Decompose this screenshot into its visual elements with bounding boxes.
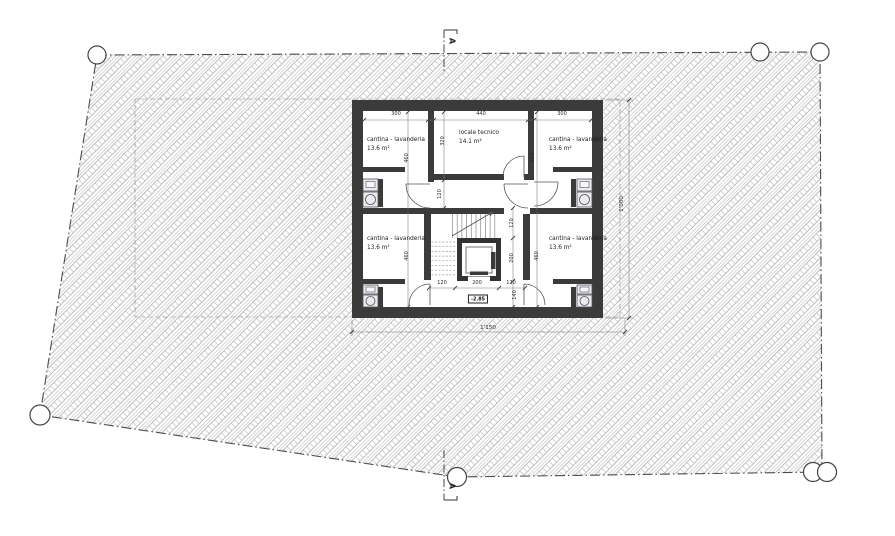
section-label-bottom: A bbox=[448, 483, 457, 489]
dim-top-left: 300 bbox=[391, 111, 401, 117]
section-label-top: A bbox=[448, 38, 457, 44]
washer-top-left bbox=[363, 179, 378, 207]
dim-lobby-right: 120 bbox=[506, 280, 516, 286]
washer-top-right bbox=[577, 179, 592, 207]
elevator-car bbox=[466, 247, 492, 273]
dim-lobby-left: 120 bbox=[437, 280, 447, 286]
site-plan-canvas: cantina - lavanderia 13.6 m² locale tecn… bbox=[0, 0, 895, 536]
elevation-marker: -2.85 bbox=[468, 295, 488, 304]
room-label-bottom-right: cantina - lavanderia bbox=[549, 236, 607, 242]
room-area-technical: 14.1 m² bbox=[459, 139, 482, 145]
room-label-bottom-left: cantina - lavanderia bbox=[367, 236, 425, 242]
dim-technical-depth: 320 bbox=[440, 136, 446, 146]
dim-lift-width: 200 bbox=[472, 280, 482, 286]
dim-depth-top-left: 460 bbox=[404, 153, 410, 163]
dim-stair-depth: 120 bbox=[509, 218, 515, 228]
dim-lift-depth: 200 bbox=[509, 253, 515, 263]
dim-depth-bottom-left: 460 bbox=[404, 251, 410, 261]
room-label-technical: locale tecnico bbox=[459, 130, 499, 136]
dim-building-depth: 1'000 bbox=[619, 196, 625, 212]
room-label-top-left: cantina - lavanderia bbox=[367, 137, 425, 143]
dim-top-mid: 440 bbox=[476, 111, 486, 117]
dim-lobby-depth: 140 bbox=[512, 290, 518, 300]
washer-bottom-right bbox=[577, 285, 592, 307]
floor-plan-drawing bbox=[0, 0, 895, 536]
dim-building-width: 1'150 bbox=[480, 325, 496, 331]
room-area-bottom-right: 13.6 m² bbox=[549, 245, 572, 251]
dim-corridor: 120 bbox=[437, 189, 443, 199]
dim-top-right: 300 bbox=[557, 111, 567, 117]
dim-depth-bottom-right: 460 bbox=[534, 251, 540, 261]
room-area-top-right: 13.6 m² bbox=[549, 146, 572, 152]
room-label-top-right: cantina - lavanderia bbox=[549, 137, 607, 143]
room-area-top-left: 13.6 m² bbox=[367, 146, 390, 152]
room-area-bottom-left: 13.6 m² bbox=[367, 245, 390, 251]
washer-bottom-left bbox=[363, 285, 378, 307]
dim-depth-top-right: 460 bbox=[530, 153, 536, 163]
